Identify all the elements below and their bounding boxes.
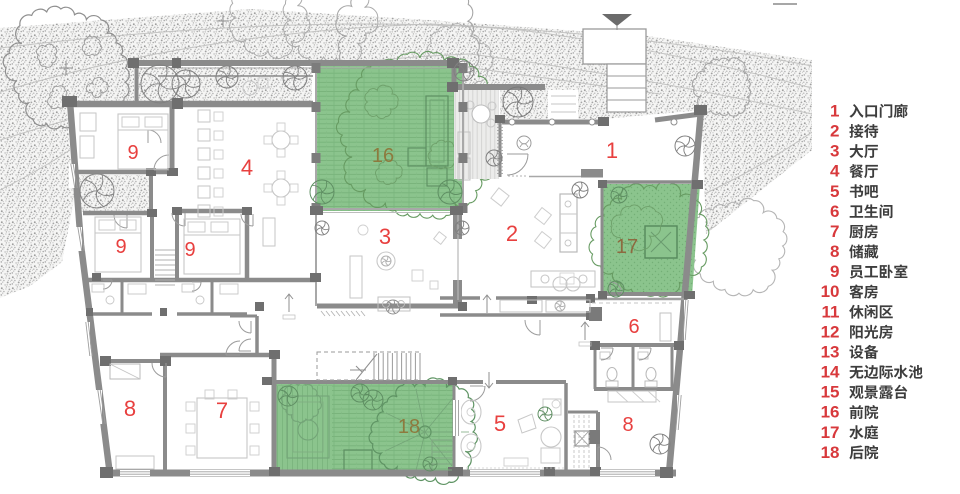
svg-text:16: 16 xyxy=(821,403,840,422)
svg-text:12: 12 xyxy=(821,322,840,341)
svg-text:9: 9 xyxy=(127,142,138,164)
svg-text:7: 7 xyxy=(830,222,839,241)
svg-text:16: 16 xyxy=(372,145,394,167)
svg-text:1: 1 xyxy=(606,138,618,163)
svg-text:8: 8 xyxy=(622,414,633,436)
svg-text:9: 9 xyxy=(830,262,839,281)
svg-text:5: 5 xyxy=(830,182,839,201)
svg-text:13: 13 xyxy=(821,343,840,362)
svg-text:8: 8 xyxy=(124,396,136,421)
svg-text:15: 15 xyxy=(821,383,840,402)
svg-text:17: 17 xyxy=(821,423,840,442)
svg-text:10: 10 xyxy=(821,282,840,301)
svg-text:9: 9 xyxy=(184,239,195,261)
svg-text:7: 7 xyxy=(216,398,228,423)
svg-text:8: 8 xyxy=(830,242,839,261)
svg-text:6: 6 xyxy=(830,202,839,221)
svg-text:4: 4 xyxy=(830,162,840,181)
svg-text:3: 3 xyxy=(830,142,839,161)
svg-text:2: 2 xyxy=(506,221,518,246)
svg-text:18: 18 xyxy=(821,443,840,462)
svg-text:1: 1 xyxy=(830,102,839,121)
svg-text:5: 5 xyxy=(494,411,506,436)
svg-text:11: 11 xyxy=(822,302,840,321)
svg-text:4: 4 xyxy=(241,155,253,180)
svg-text:3: 3 xyxy=(379,224,391,249)
svg-text:9: 9 xyxy=(115,236,126,258)
svg-text:14: 14 xyxy=(821,363,840,382)
svg-text:18: 18 xyxy=(398,416,420,438)
svg-text:6: 6 xyxy=(628,316,639,338)
svg-text:17: 17 xyxy=(616,236,638,258)
svg-text:2: 2 xyxy=(830,122,839,141)
